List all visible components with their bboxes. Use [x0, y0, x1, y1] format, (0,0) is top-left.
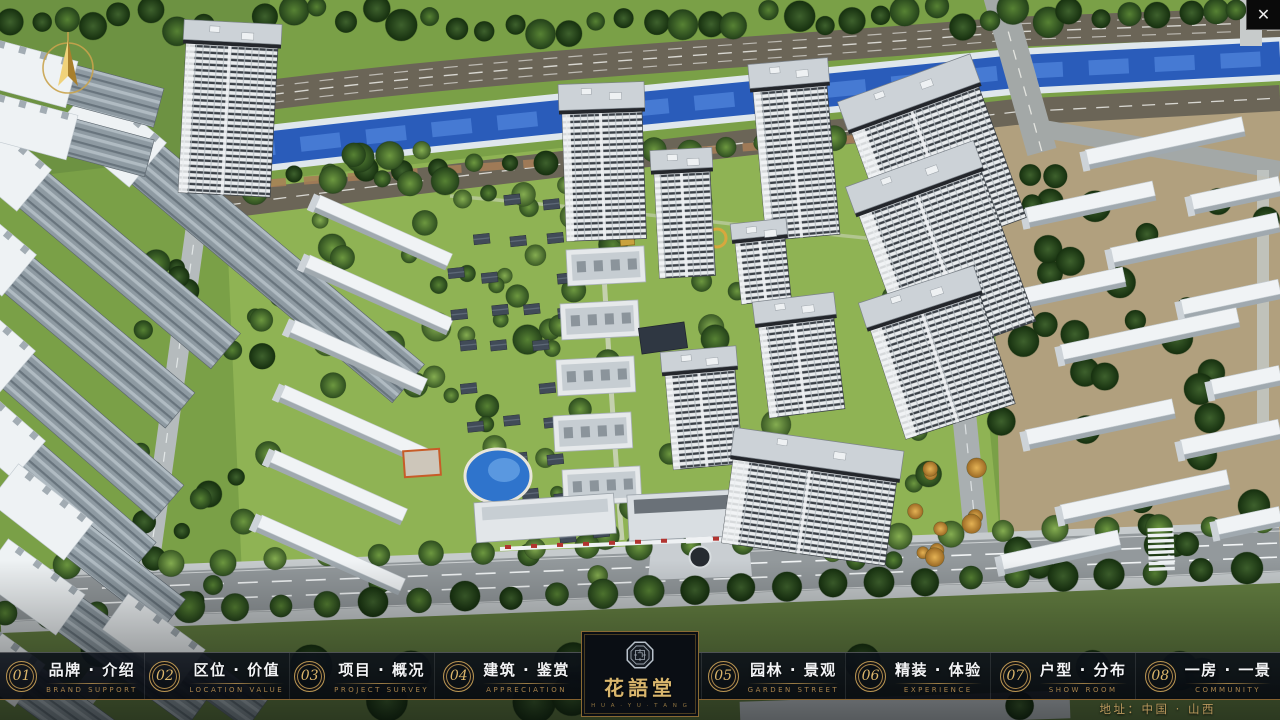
- nav-item-label-zh: 户型 · 分布: [1040, 659, 1127, 680]
- nav-item-label-zh: 项目 · 概况: [338, 659, 425, 680]
- nav-number-badge: 02: [149, 661, 180, 692]
- nav-item-label-zh: 园林 · 景观: [750, 659, 837, 680]
- nav-item-label-en: BRAND SUPPORT: [46, 686, 138, 694]
- logo-subtitle: H U A · Y U · T A N G: [591, 703, 689, 709]
- gold-divider: [895, 683, 982, 684]
- nav-item-label-en: PROJECT SURVEY: [334, 686, 429, 694]
- close-button[interactable]: ✕: [1246, 0, 1280, 30]
- nav-item-label-zh: 品牌 · 介绍: [49, 659, 136, 680]
- nav-item-label-en: GARDEN STREET: [748, 686, 840, 694]
- project-address: 地址：中国 · 山西: [1100, 701, 1216, 717]
- north-compass-icon: [38, 30, 98, 98]
- nav-item-label-en: COMMUNITY: [1195, 686, 1261, 694]
- nav-item-label-en: APPRECIATION: [486, 686, 567, 694]
- gold-divider: [483, 683, 570, 684]
- nav-item-label-en: SHOW ROOM: [1049, 686, 1118, 694]
- nav-number-badge: 08: [1145, 661, 1176, 692]
- nav-item-floorplan[interactable]: 07 户型 · 分布 SHOW ROOM: [990, 653, 1135, 699]
- gold-divider: [334, 683, 429, 684]
- project-logo-panel[interactable]: 花語堂 H U A · Y U · T A N G: [581, 631, 699, 717]
- nav-item-location[interactable]: 02 区位 · 价值 LOCATION VALUE: [144, 653, 289, 699]
- nav-number-badge: 07: [1000, 661, 1031, 692]
- nav-item-label-en: LOCATION VALUE: [189, 686, 284, 694]
- nav-number-badge: 06: [855, 661, 886, 692]
- nav-item-label-zh: 建筑 · 鉴赏: [483, 659, 570, 680]
- nav-number-badge: 04: [443, 661, 474, 692]
- gold-divider: [1185, 683, 1272, 684]
- nav-item-garden[interactable]: 05 园林 · 景观 GARDEN STREET: [701, 653, 846, 699]
- nav-item-interior[interactable]: 06 精装 · 体验 EXPERIENCE: [845, 653, 990, 699]
- sales-presentation-app: ✕ 01 品牌 · 介绍 BRAND SUPPORT 02 区位 · 价值 LO…: [0, 0, 1280, 720]
- nav-item-label-zh: 精装 · 体验: [895, 659, 982, 680]
- nav-item-architecture[interactable]: 04 建筑 · 鉴赏 APPRECIATION: [434, 653, 579, 699]
- nav-number-badge: 03: [294, 661, 325, 692]
- nav-item-label-en: EXPERIENCE: [904, 686, 973, 694]
- logo-seal-icon: [625, 640, 655, 670]
- nav-number-badge: 05: [708, 661, 739, 692]
- gold-divider: [46, 683, 138, 684]
- gold-divider: [189, 683, 284, 684]
- gold-divider: [1040, 683, 1127, 684]
- close-icon: ✕: [1257, 5, 1270, 24]
- site-plan-render: [0, 0, 1280, 720]
- nav-item-label-zh: 区位 · 价值: [193, 659, 280, 680]
- nav-item-brand[interactable]: 01 品牌 · 介绍 BRAND SUPPORT: [0, 653, 144, 699]
- gold-divider: [748, 683, 840, 684]
- nav-item-label-zh: 一房 · 一景: [1185, 659, 1272, 680]
- nav-item-project[interactable]: 03 项目 · 概况 PROJECT SURVEY: [289, 653, 434, 699]
- nav-item-views[interactable]: 08 一房 · 一景 COMMUNITY: [1135, 653, 1280, 699]
- logo-title: 花語堂: [604, 672, 676, 701]
- nav-number-badge: 01: [6, 661, 37, 692]
